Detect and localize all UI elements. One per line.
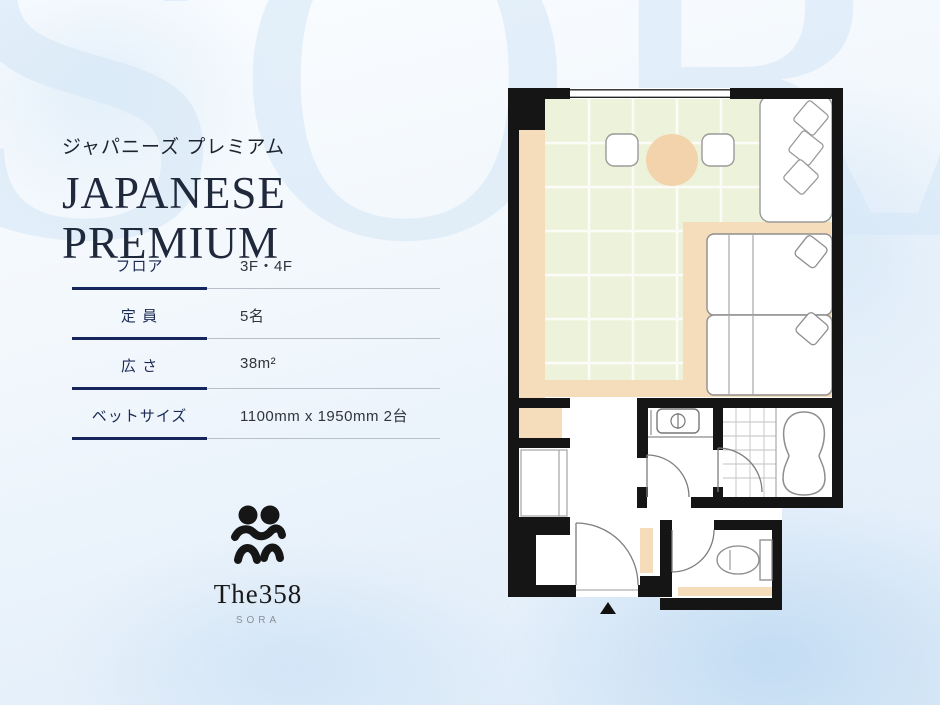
logo-wordmark: The358 (193, 579, 323, 610)
chair-right (702, 134, 734, 166)
logo-subtext: SORA (193, 615, 323, 626)
spec-label: 定 員 (72, 305, 207, 326)
room-subtitle-japanese: ジャパニーズ プレミアム (62, 132, 442, 159)
toilet-tank (760, 540, 772, 580)
spec-label: フロア (72, 255, 207, 276)
spec-row-bedsize: ベットサイズ 1100mm x 1950mm 2台 (62, 390, 440, 440)
two-people-icon (226, 504, 290, 570)
closet (521, 450, 567, 516)
low-table (646, 134, 698, 186)
sofa (760, 96, 832, 222)
window (570, 88, 730, 99)
beds (707, 234, 832, 395)
corner-pillar (508, 88, 545, 130)
toilet-bowl (717, 546, 759, 574)
engawa-strip (519, 130, 545, 398)
hotel-logo: The358 SORA (193, 504, 323, 626)
spec-table: フロア 3F・4F 定 員 5名 広 さ 38m² ベットサイズ 1100mm … (62, 240, 440, 440)
floor-plan (508, 88, 844, 624)
entrance-strip (640, 528, 653, 573)
row-divider (72, 437, 440, 441)
spec-value: 5名 (240, 305, 264, 326)
entrance-marker (600, 602, 616, 614)
spec-row-floor: フロア 3F・4F (62, 240, 440, 290)
shower-fixture-icon (736, 400, 745, 405)
spec-value: 1100mm x 1950mm 2台 (240, 405, 408, 426)
spec-label: ベットサイズ (72, 405, 207, 426)
bathtub (783, 412, 825, 495)
spec-value: 38m² (240, 355, 276, 372)
room-info-card: { "background": { "watermark": "SORA" },… (0, 0, 940, 705)
spec-row-size: 広 さ 38m² (62, 340, 440, 390)
alcove (519, 408, 562, 438)
spec-label: 広 さ (72, 355, 207, 376)
spec-row-capacity: 定 員 5名 (62, 290, 440, 340)
chair-left (606, 134, 638, 166)
spec-value: 3F・4F (240, 255, 293, 276)
